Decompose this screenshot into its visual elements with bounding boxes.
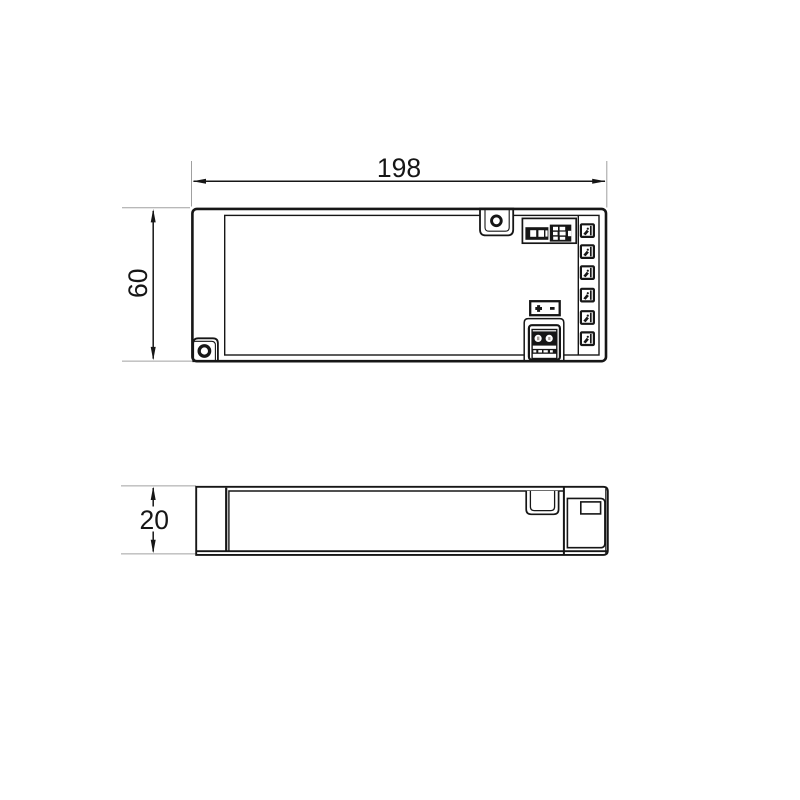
svg-text:60: 60 xyxy=(123,269,153,298)
svg-text:20: 20 xyxy=(140,505,169,535)
svg-text:198: 198 xyxy=(377,153,421,183)
